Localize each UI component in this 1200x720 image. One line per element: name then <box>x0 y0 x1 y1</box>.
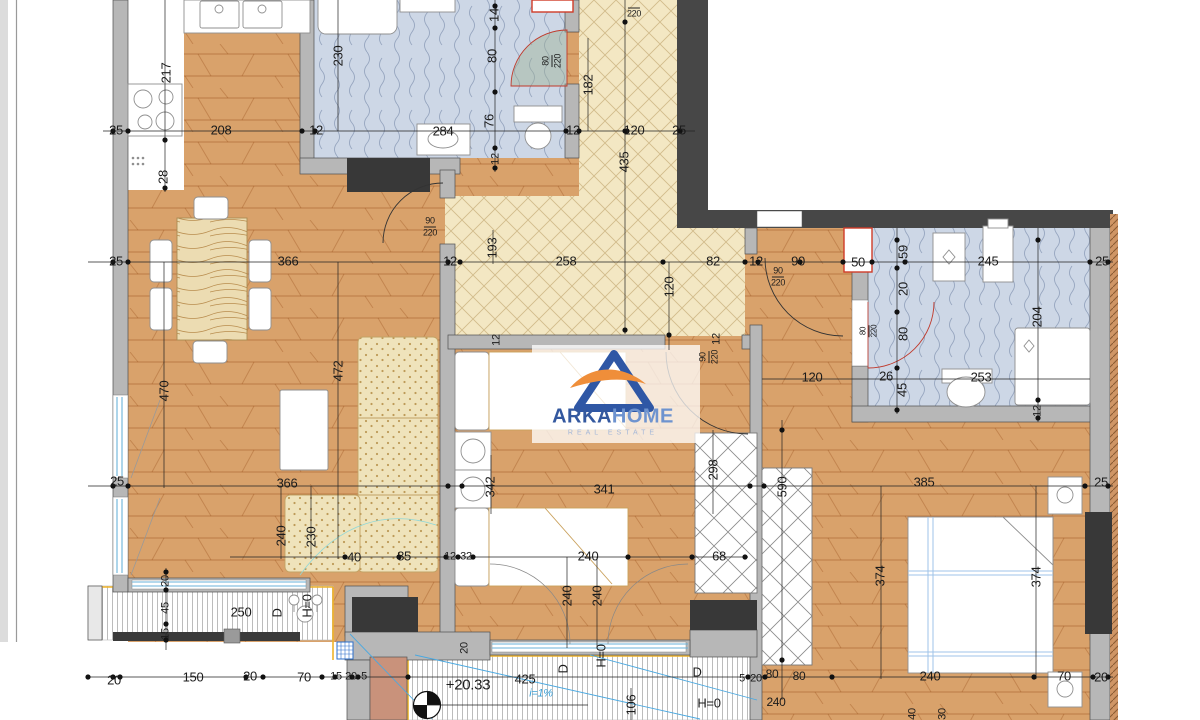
dim-tick <box>745 674 750 679</box>
dim-tick <box>312 128 317 133</box>
dim-tick <box>829 674 834 679</box>
stove <box>128 84 182 136</box>
facade-strip <box>1110 214 1118 720</box>
balcony1-deck <box>88 586 333 640</box>
dim-tick <box>299 128 304 133</box>
dim-tick <box>894 237 899 242</box>
dim-tick <box>342 554 347 559</box>
chair <box>150 240 172 282</box>
terracotta-pillar <box>370 657 407 720</box>
dark-pier <box>690 600 757 630</box>
logo-text-arka: ARKA <box>552 406 612 428</box>
dim-tick <box>1082 483 1087 488</box>
dim-tick <box>110 674 115 679</box>
thick-wall-vertical <box>677 0 708 212</box>
dim-tick <box>457 259 462 264</box>
dim-tick <box>1087 259 1092 264</box>
wardrobe <box>695 433 757 593</box>
logo-tagline: REAL ESTATE <box>568 430 658 437</box>
dim-tick <box>1105 674 1110 679</box>
balcony-stool <box>289 595 299 605</box>
dim-tick <box>332 674 337 679</box>
dim-tick <box>405 674 410 679</box>
thick-wall-horizontal <box>677 210 1113 228</box>
dim-tick <box>163 569 168 574</box>
dim-tick <box>689 554 694 559</box>
dim-tick <box>125 259 130 264</box>
toilet-tank <box>514 106 562 122</box>
dim-tick <box>1035 237 1040 242</box>
dim-tick <box>85 674 90 679</box>
nightstand <box>1048 477 1082 514</box>
dim-tick <box>443 554 448 559</box>
dim-tick <box>163 637 168 642</box>
toilet <box>525 123 551 149</box>
page-bottom-left <box>0 642 347 720</box>
dim-tick <box>797 259 802 264</box>
dim-tick <box>117 674 122 679</box>
dim-tick <box>622 327 627 332</box>
dim-tick <box>761 483 766 488</box>
logo-text-home: HOME <box>612 406 674 428</box>
shaft-box-50 <box>844 228 872 272</box>
shaft-box <box>532 0 573 12</box>
chair <box>150 288 172 330</box>
dim-tick <box>455 554 460 559</box>
dim-tick <box>840 259 845 264</box>
dim-tick <box>747 483 752 488</box>
dim-tick <box>894 407 899 412</box>
dim-tick <box>755 259 760 264</box>
dim-tick <box>622 128 627 133</box>
chair <box>249 288 271 330</box>
floor-plan-page: 2520812284121202521728230148076121824358… <box>0 0 1200 720</box>
dim-tick <box>622 19 627 24</box>
dim-tick <box>125 128 130 133</box>
boiler <box>983 226 1013 282</box>
dim-tick <box>742 259 747 264</box>
sofa-long <box>358 337 438 572</box>
dim-tick <box>869 259 874 264</box>
dim-tick <box>396 554 401 559</box>
dim-tick <box>894 365 899 370</box>
bed2-pillow <box>455 508 489 586</box>
logo-wordmark: ARKAHOME <box>552 406 674 429</box>
dim-tick <box>1035 397 1040 402</box>
toilet <box>947 377 985 407</box>
dim-tick <box>243 674 248 679</box>
dim-tick <box>125 483 130 488</box>
chair <box>194 197 228 219</box>
dim-tick <box>349 674 354 679</box>
shower-tray <box>1015 328 1090 405</box>
dim-tick <box>660 259 665 264</box>
dim-tick <box>1031 674 1036 679</box>
bedside-stool <box>455 470 491 508</box>
dim-tick <box>162 137 167 142</box>
bed2b <box>489 508 628 586</box>
dim-tick <box>445 259 450 264</box>
master-window-shutter <box>1085 512 1112 634</box>
dim-tick <box>445 483 450 488</box>
dim-tick <box>110 259 115 264</box>
chair <box>193 341 227 363</box>
dim-tick <box>459 483 464 488</box>
dim-tick <box>894 309 899 314</box>
bed2-pillow <box>455 352 489 430</box>
page-right-margin <box>1118 0 1200 720</box>
dim-tick <box>319 674 324 679</box>
dim-tick <box>779 657 784 662</box>
dim-tick <box>260 674 265 679</box>
dim-tick <box>677 128 682 133</box>
hall-vertical-floor <box>579 0 677 214</box>
dim-tick <box>1105 259 1110 264</box>
dim-tick <box>355 674 360 679</box>
dim-tick <box>163 621 168 626</box>
dim-tick <box>779 427 784 432</box>
page-edge <box>0 0 17 720</box>
balcony1-railing <box>113 632 300 641</box>
dim-tick <box>492 3 497 8</box>
dim-tick <box>894 265 899 270</box>
bathtub <box>318 0 397 34</box>
balcony-stool <box>312 595 322 605</box>
dim-tick <box>1035 415 1040 420</box>
dim-tick <box>742 554 747 559</box>
entry-door-opening <box>757 211 802 227</box>
dim-tick <box>1090 674 1095 679</box>
sofa-short <box>285 495 360 572</box>
void-neighbour-area <box>708 0 1118 212</box>
dim-tick <box>666 332 671 337</box>
dining-table <box>177 218 247 340</box>
dim-tick <box>110 128 115 133</box>
dim-tick <box>470 554 475 559</box>
bath-fixture <box>400 0 455 12</box>
dim-tick <box>1105 483 1110 488</box>
dim-tick <box>902 259 907 264</box>
dim-tick <box>576 128 581 133</box>
dim-tick <box>762 674 767 679</box>
dim-tick <box>625 554 630 559</box>
dim-tick <box>163 587 168 592</box>
dim-tick <box>563 128 568 133</box>
dark-pier <box>352 597 418 632</box>
bedside-stool <box>455 432 491 470</box>
chair <box>249 240 271 282</box>
dim-tick <box>110 483 115 488</box>
dim-tick <box>492 25 497 30</box>
washing-machine <box>933 233 965 281</box>
coffee-table <box>280 390 328 470</box>
dim-tick <box>162 185 167 190</box>
floor-plan-drawing <box>0 0 1200 720</box>
balcony-table <box>297 606 313 622</box>
dim-tick <box>492 145 497 150</box>
dark-block <box>347 158 430 192</box>
wardrobe <box>762 468 812 665</box>
master-bed <box>908 517 1053 673</box>
dim-tick <box>492 89 497 94</box>
dim-tick <box>492 165 497 170</box>
